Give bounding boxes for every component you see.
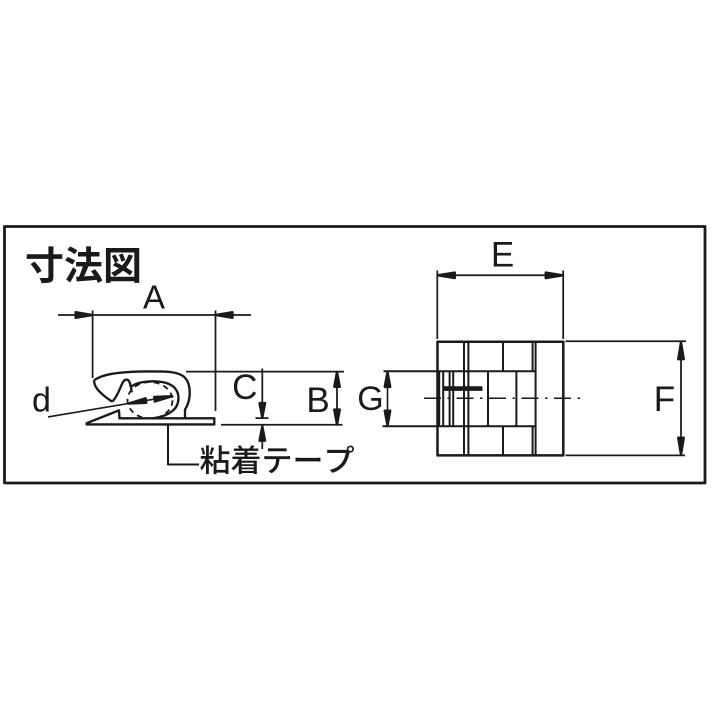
- svg-text:d: d: [32, 382, 51, 420]
- svg-text:A: A: [143, 279, 165, 316]
- svg-text:E: E: [491, 236, 514, 275]
- svg-text:G: G: [357, 380, 383, 418]
- svg-text:B: B: [306, 381, 329, 420]
- svg-text:F: F: [654, 380, 675, 419]
- svg-text:C: C: [232, 368, 257, 407]
